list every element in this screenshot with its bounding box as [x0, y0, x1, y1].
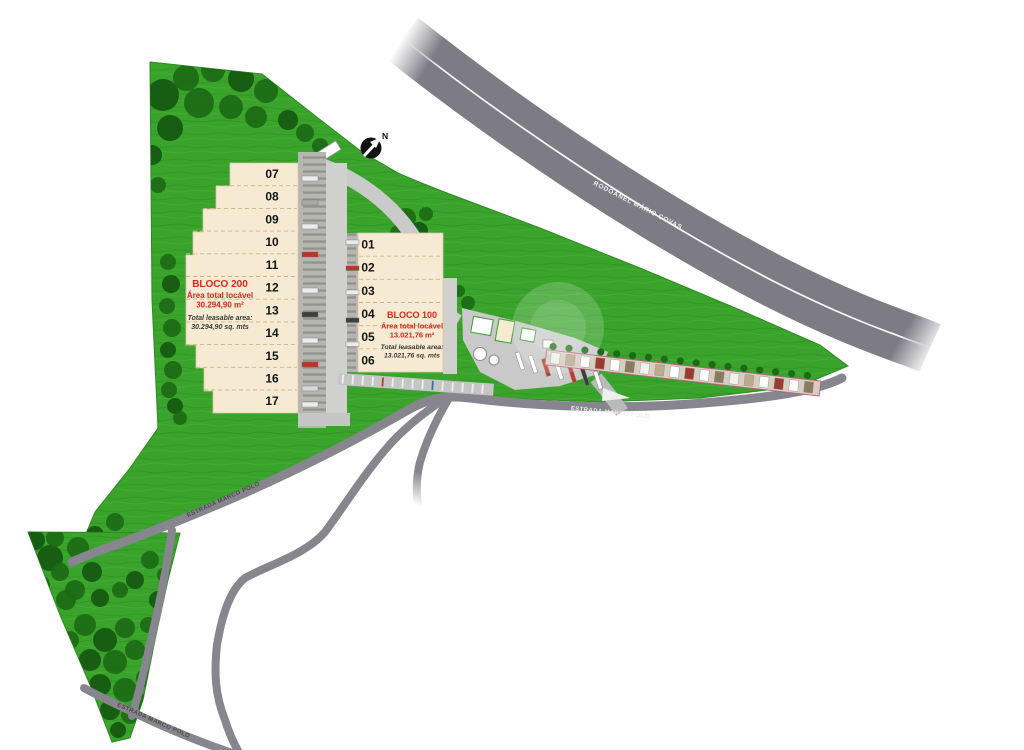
- docked-truck: [302, 200, 318, 205]
- parked-truck: [744, 374, 754, 386]
- tree: [82, 562, 102, 582]
- tree: [161, 382, 177, 398]
- docked-truck: [302, 288, 318, 293]
- unit-number-label: 12: [265, 281, 279, 295]
- unit-number-label: 09: [265, 212, 279, 226]
- tree: [115, 618, 135, 638]
- unit-number-label: 05: [361, 330, 375, 344]
- tree: [278, 110, 298, 130]
- tree: [106, 513, 124, 531]
- docked-truck: [346, 266, 359, 271]
- unit-number-label: 16: [265, 371, 279, 385]
- docked-truck: [346, 240, 359, 245]
- parked-truck: [610, 359, 620, 371]
- docked-truck: [346, 318, 359, 323]
- unit-number-label: 06: [361, 353, 375, 367]
- support-building-1: [471, 316, 493, 335]
- docked-truck: [346, 290, 359, 295]
- parked-truck: [595, 357, 605, 369]
- watermark-circle-inner: [530, 300, 586, 356]
- unit-number-label: 01: [361, 238, 375, 252]
- bloco-200-leasable-label: Total leasable area:: [188, 315, 253, 322]
- tree: [173, 65, 199, 91]
- tree: [160, 342, 176, 358]
- parked-truck: [789, 380, 799, 392]
- unit-number-label: 13: [265, 303, 279, 317]
- tree: [126, 571, 144, 589]
- tree: [103, 650, 127, 674]
- parked-truck: [699, 369, 709, 381]
- bloco-200-area-value: 30.294,90 m²: [196, 301, 244, 310]
- tree: [91, 589, 109, 607]
- docked-truck: [302, 402, 318, 407]
- tree: [142, 145, 162, 165]
- bloco-100-leasable-value: 13.021,76 sq. mts: [384, 353, 440, 360]
- docked-truck: [346, 342, 359, 347]
- tree: [110, 722, 126, 738]
- unit-number-label: 17: [265, 394, 279, 408]
- parked-truck: [774, 378, 784, 390]
- bloco-200-unit-numbers: 0708091011121314151617: [265, 167, 279, 408]
- tree: [159, 298, 175, 314]
- unit-number-label: 15: [265, 349, 279, 363]
- tree: [125, 640, 145, 660]
- tree: [164, 361, 182, 379]
- tree: [173, 411, 187, 425]
- tree: [147, 79, 179, 111]
- tree: [39, 603, 57, 621]
- tree: [254, 79, 278, 103]
- tree: [93, 628, 117, 652]
- tree: [245, 106, 267, 128]
- north-label: N: [382, 131, 388, 141]
- bloco-100-area-label: Área total locável: [381, 322, 443, 331]
- tree: [419, 207, 433, 221]
- parked-truck: [684, 368, 694, 380]
- docked-truck: [302, 338, 318, 343]
- docked-truck: [302, 252, 318, 257]
- tree: [160, 254, 176, 270]
- tree: [112, 582, 128, 598]
- bloco-200-title: BLOCO 200: [192, 279, 248, 290]
- unit-number-label: 02: [361, 261, 375, 275]
- tree: [162, 275, 180, 293]
- tree: [461, 296, 475, 310]
- storage-tank-1: [474, 348, 487, 361]
- tree: [152, 647, 168, 663]
- docked-truck: [302, 312, 318, 317]
- unit-number-label: 11: [266, 258, 279, 272]
- tree: [296, 124, 314, 142]
- tree: [51, 563, 69, 581]
- tree: [141, 551, 159, 569]
- support-building-2: [495, 319, 515, 343]
- bloco-100-label-block: BLOCO 100 Área total locável 13.021,76 m…: [381, 310, 444, 360]
- parked-truck: [759, 376, 769, 388]
- docked-truck: [302, 362, 318, 367]
- tree: [74, 614, 96, 636]
- unit-number-label: 03: [361, 284, 375, 298]
- parked-truck: [625, 361, 635, 373]
- tree: [219, 95, 243, 119]
- storage-tank-2: [489, 355, 499, 365]
- tree: [30, 575, 50, 595]
- tree: [61, 631, 79, 649]
- tree: [65, 580, 85, 600]
- bloco-100-leasable-label: Total leasable area:: [381, 344, 444, 351]
- site-plan-canvas: RODOANEL MÁRIO COVAS: [0, 0, 1024, 750]
- parked-truck: [655, 364, 665, 376]
- bloco-200-area-label: Área total locável: [187, 291, 253, 300]
- docked-truck: [302, 224, 318, 229]
- compass: N: [361, 131, 389, 159]
- bloco-200-label-block: BLOCO 200 Área total locável 30.294,90 m…: [187, 279, 253, 331]
- unit-number-label: 14: [265, 326, 279, 340]
- tree: [201, 58, 225, 82]
- tree: [157, 115, 183, 141]
- unit-number-label: 07: [265, 167, 279, 181]
- bloco-100-title: BLOCO 100: [387, 310, 437, 320]
- docked-truck: [302, 386, 318, 391]
- parked-truck: [804, 381, 814, 393]
- bloco-100-area-value: 13.021,76 m²: [390, 331, 435, 340]
- unit-number-label: 04: [361, 307, 375, 321]
- south-apron: [298, 413, 350, 426]
- tree: [228, 66, 254, 92]
- parked-truck: [729, 373, 739, 385]
- docked-truck: [302, 176, 318, 181]
- bloco-200-leasable-value: 30.294,90 sq. mts: [191, 324, 249, 331]
- parked-truck: [640, 363, 650, 375]
- unit-number-label: 08: [265, 190, 279, 204]
- tree: [163, 319, 181, 337]
- unit-number-label: 10: [265, 235, 279, 249]
- parked-truck: [714, 371, 724, 383]
- site-plan-svg: RODOANEL MÁRIO COVAS: [0, 0, 1024, 750]
- tree: [184, 88, 214, 118]
- tree: [150, 177, 166, 193]
- east-service-lane: [443, 278, 457, 374]
- parked-truck: [669, 366, 679, 378]
